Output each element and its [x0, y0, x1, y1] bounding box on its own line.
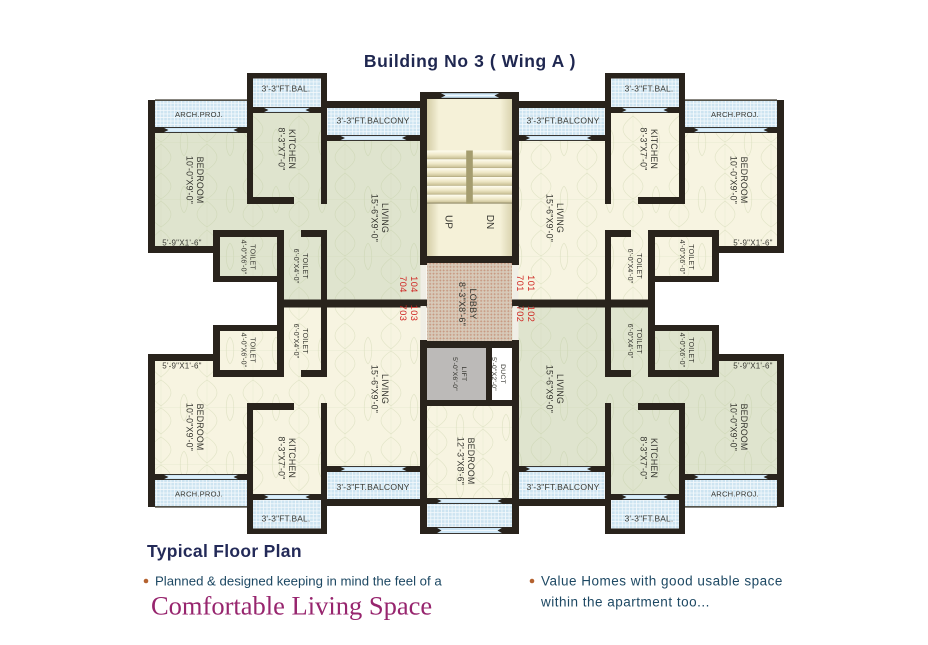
svg-text:ARCH.PROJ.: ARCH.PROJ.	[711, 490, 759, 499]
svg-text:3'-3"FT.BALCONY: 3'-3"FT.BALCONY	[336, 115, 409, 125]
svg-text:102702: 102702	[515, 306, 536, 323]
svg-text:3'-3"FT.BALCONY: 3'-3"FT.BALCONY	[336, 482, 409, 492]
svg-text:BEDROOM12'-3"X8'-6": BEDROOM12'-3"X8'-6"	[455, 437, 476, 485]
svg-text:3'-3"FT.BALCONY: 3'-3"FT.BALCONY	[526, 482, 599, 492]
svg-text:101701: 101701	[515, 275, 536, 292]
svg-text:5'-9"X1'-6": 5'-9"X1'-6"	[162, 239, 201, 248]
svg-text:103703: 103703	[398, 305, 419, 322]
svg-text:KITCHEN8'-3"X7'-0": KITCHEN8'-3"X7'-0"	[638, 127, 659, 170]
svg-text:ARCH.PROJ.: ARCH.PROJ.	[175, 110, 223, 119]
svg-text:3'-3"FT.BAL.: 3'-3"FT.BAL.	[262, 84, 311, 94]
svg-text:LOBBY8'-3"X8'-6": LOBBY8'-3"X8'-6"	[457, 282, 478, 326]
svg-text:104704: 104704	[398, 276, 419, 293]
svg-text:BEDROOM10'-0"X9'-0": BEDROOM10'-0"X9'-0"	[728, 403, 749, 451]
svg-text:DN: DN	[484, 215, 495, 229]
svg-text:BEDROOM10'-0"X9'-0": BEDROOM10'-0"X9'-0"	[184, 156, 205, 204]
svg-text:Typical Floor Plan: Typical Floor Plan	[147, 541, 302, 561]
svg-text:Value Homes with good usable s: Value Homes with good usable space	[541, 574, 783, 589]
svg-text:Planned & designed keeping in: Planned & designed keeping in mind the f…	[155, 574, 442, 589]
svg-text:within the apartment too...: within the apartment too...	[540, 595, 710, 610]
svg-text:Comfortable Living Space: Comfortable Living Space	[151, 591, 432, 621]
svg-text:3'-3"FT.BAL.: 3'-3"FT.BAL.	[262, 513, 311, 523]
svg-text:ARCH.PROJ.: ARCH.PROJ.	[175, 490, 223, 499]
svg-text:UP: UP	[443, 215, 454, 229]
svg-text:5'-9"X1'-6": 5'-9"X1'-6"	[733, 362, 772, 371]
svg-text:5'-9"X1'-6": 5'-9"X1'-6"	[162, 362, 201, 371]
svg-text:KITCHEN8'-3"X7'-0": KITCHEN8'-3"X7'-0"	[276, 436, 297, 479]
svg-text:KITCHEN8'-3"X7'-0": KITCHEN8'-3"X7'-0"	[638, 436, 659, 479]
svg-text:3'-3"FT.BALCONY: 3'-3"FT.BALCONY	[526, 115, 599, 125]
svg-text:ARCH.PROJ.: ARCH.PROJ.	[711, 110, 759, 119]
svg-text:BEDROOM10'-0"X9'-0": BEDROOM10'-0"X9'-0"	[728, 156, 749, 204]
svg-text:KITCHEN8'-3"X7'-0": KITCHEN8'-3"X7'-0"	[276, 127, 297, 170]
svg-text:5'-9"X1'-6": 5'-9"X1'-6"	[733, 239, 772, 248]
svg-text:3'-3"FT.BAL.: 3'-3"FT.BAL.	[625, 84, 674, 94]
svg-text:Building No 3 ( Wing A ): Building No 3 ( Wing A )	[364, 51, 576, 71]
svg-text:3'-3"FT.BAL.: 3'-3"FT.BAL.	[625, 513, 674, 523]
svg-text:BEDROOM10'-0"X9'-0": BEDROOM10'-0"X9'-0"	[184, 403, 205, 451]
